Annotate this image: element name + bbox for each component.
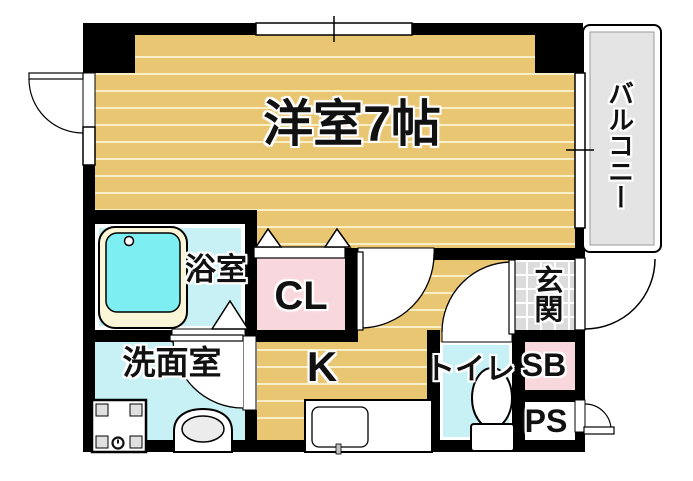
wash-basin-icon bbox=[174, 409, 232, 452]
western-room-door-icon bbox=[357, 248, 434, 330]
label-shoebox: SB bbox=[519, 348, 569, 383]
floor-plan: 洋室7帖 バルコニー 浴室 CL 洗面室 K トイレ 玄関 SB PS bbox=[0, 0, 693, 481]
label-toilet: トイレ bbox=[420, 353, 520, 386]
ps-door-icon bbox=[575, 400, 614, 434]
label-washroom: 洗面室 bbox=[117, 345, 227, 381]
label-entrance: 玄関 bbox=[529, 262, 561, 326]
label-kitchen: K bbox=[299, 344, 345, 390]
toilet-door-icon bbox=[442, 260, 515, 342]
closet-folding-door-icon bbox=[254, 229, 350, 258]
washing-machine-icon bbox=[92, 400, 146, 452]
plan-symbols-layer bbox=[0, 0, 693, 481]
label-closet: CL bbox=[271, 274, 331, 318]
label-bathroom: 浴室 bbox=[183, 253, 249, 287]
front-door-icon bbox=[575, 258, 655, 330]
door-left-icon bbox=[29, 73, 83, 133]
window-top-icon bbox=[256, 16, 412, 42]
bathtub-icon bbox=[99, 227, 187, 328]
window-left-icon bbox=[83, 73, 95, 165]
label-western-room: 洋室7帖 bbox=[200, 97, 504, 152]
kitchen-sink-icon bbox=[305, 400, 432, 454]
label-pipe-space: PS bbox=[521, 404, 571, 439]
label-balcony: バルコニー bbox=[605, 70, 634, 220]
